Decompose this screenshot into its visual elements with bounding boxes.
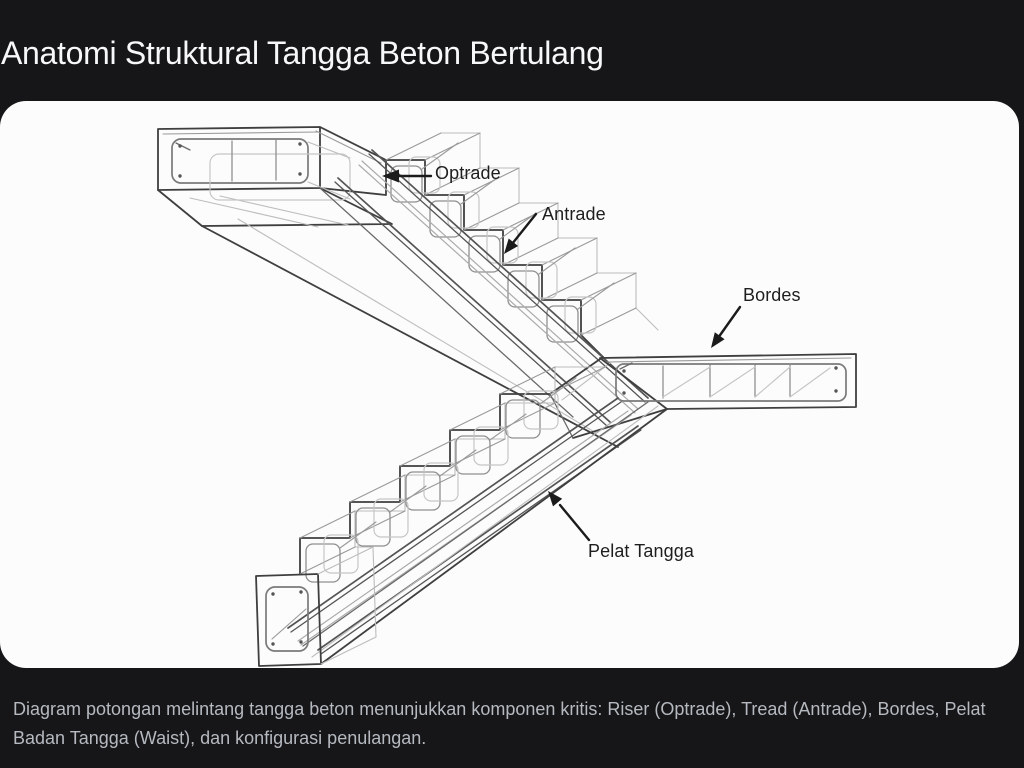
caption-bar: Diagram potongan melintang tangga beton … xyxy=(0,668,1024,768)
slide-root: Anatomi Struktural Tangga Beton Bertulan… xyxy=(0,0,1024,768)
diagram-panel: Optrade Antrade Bordes Pelat Tangga xyxy=(0,101,1019,668)
diagram-caption: Diagram potongan melintang tangga beton … xyxy=(0,668,998,752)
upper-landing xyxy=(158,127,392,227)
antrade-arrow xyxy=(504,214,536,254)
lower-flight-nosings xyxy=(300,367,605,574)
label-optrade: Optrade xyxy=(435,163,501,184)
lower-flight xyxy=(288,367,667,664)
bordes-stirrup-rebar xyxy=(616,363,846,401)
label-pelat-tangga: Pelat Tangga xyxy=(588,541,694,562)
pelat-tangga-arrow xyxy=(548,491,589,540)
bordes-slab xyxy=(600,354,856,409)
upper-flight xyxy=(202,133,658,447)
label-antrade: Antrade xyxy=(542,204,606,225)
stair-diagram xyxy=(0,101,1019,668)
page-title: Anatomi Struktural Tangga Beton Bertulan… xyxy=(0,0,1024,70)
bordes-arrow xyxy=(711,307,740,348)
upper-flight-soffit xyxy=(202,188,618,447)
title-bar: Anatomi Struktural Tangga Beton Bertulan… xyxy=(0,0,1024,101)
label-bordes: Bordes xyxy=(743,285,801,306)
upper-flight-nosings xyxy=(386,133,636,335)
upper-flight-rebar-rails xyxy=(335,150,648,426)
